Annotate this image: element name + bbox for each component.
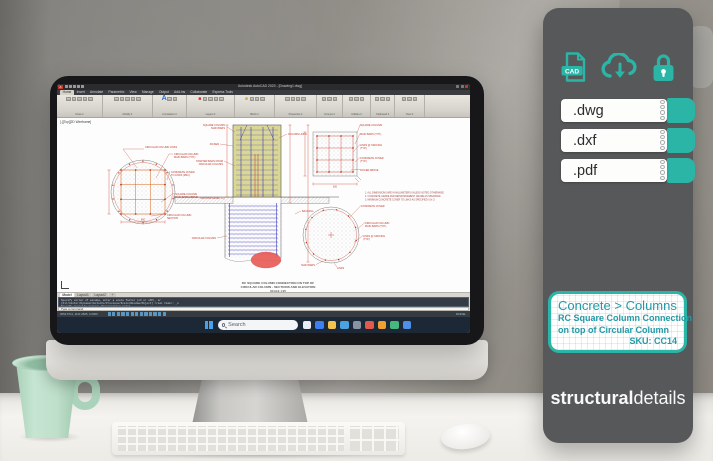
taskbar-search[interactable]: Search	[218, 320, 298, 331]
tool-icon[interactable]	[413, 97, 418, 102]
monitor-screen: A Autodesk AutoCAD 2023 - [Drawing1.dwg]…	[57, 84, 470, 333]
edge-browser-icon[interactable]	[315, 321, 324, 330]
tool-icon[interactable]	[120, 97, 125, 102]
ribbon-group-annotation: AAnnotation ▾	[153, 95, 187, 117]
command-input[interactable]: Type a command	[58, 307, 469, 311]
autocad-app-icon[interactable]: A	[58, 85, 63, 89]
tool-icon[interactable]	[333, 97, 338, 102]
drawing-label: GROUND LEVEL	[200, 197, 220, 200]
drawing-note: 2. CONCRETE GRADE AND REINFORCEMENT GRAD…	[365, 195, 441, 198]
tool-icon[interactable]	[260, 97, 265, 102]
drawing-label: LINKS	[337, 267, 345, 270]
drawing-note: 3. MINIMUM CONCRETE COVER TO LINKS AS SP…	[365, 199, 436, 202]
tool-icon[interactable]	[167, 97, 172, 102]
ribbon-group-properties: Properties ▾	[275, 95, 317, 117]
ribbon-group-label: View ▾	[406, 113, 414, 116]
drawing-label: CONCRETE COVER(TYP.)	[360, 157, 384, 163]
keyboard	[112, 422, 405, 455]
ribbon-group-layers: ■Layers ▾	[187, 95, 235, 117]
cad-file-icon: CAD	[560, 52, 590, 83]
excel-icon[interactable]	[390, 321, 399, 330]
drawing-label: CIRCULAR COLUMNMAIN BARS (TYP.)	[365, 222, 390, 228]
tool-icon[interactable]	[291, 97, 296, 102]
quick-access-toolbar[interactable]	[65, 85, 84, 88]
cursor-coordinates: 3054.6711, 1121.0825, 0.0000	[60, 312, 98, 316]
ribbon-group-label: Utilities ▾	[351, 113, 361, 116]
square-column-plan-section	[304, 125, 362, 186]
drawing-label: 600	[141, 219, 146, 222]
drawing-label: SQUARE COLUMNMAIN BARS	[203, 124, 225, 130]
drawing-label: 300	[333, 186, 338, 189]
tool-icon[interactable]	[285, 97, 290, 102]
scene: A Autodesk AutoCAD 2023 - [Drawing1.dwg]…	[0, 0, 713, 461]
format-button-list: .dwg.dxf.pdf	[561, 98, 693, 188]
tool-icon[interactable]: ■	[197, 97, 202, 102]
tool-icon[interactable]	[386, 97, 391, 102]
tool-icon[interactable]	[203, 97, 208, 102]
drawing-note: 1. ALL DIMENSIONS ARE IN MILLIMETERS UNL…	[365, 192, 445, 195]
status-toggle-icon[interactable]	[135, 312, 138, 315]
tool-icon[interactable]	[375, 97, 380, 102]
status-toggle-icon[interactable]	[140, 312, 143, 315]
ucs-icon	[61, 281, 69, 289]
brand-regular: details	[634, 388, 686, 408]
tool-icon[interactable]: A	[162, 97, 167, 102]
ribbon-group-utilities: Utilities ▾	[343, 95, 371, 117]
ribbon-group-label: Groups ▾	[324, 113, 335, 116]
tool-icon[interactable]	[322, 97, 327, 102]
spiral-binding	[660, 160, 665, 181]
status-toggle-icon[interactable]	[144, 312, 147, 315]
drawing-label: MAIN BARS	[301, 264, 315, 267]
status-toggle-icon[interactable]	[126, 312, 129, 315]
format-tab-dwg[interactable]	[667, 98, 695, 123]
tool-icon[interactable]	[296, 97, 301, 102]
close-icon	[465, 85, 468, 88]
tool-icon[interactable]	[72, 97, 77, 102]
status-toggle-icons[interactable]	[108, 312, 166, 315]
maximize-icon	[461, 85, 464, 88]
tool-icon[interactable]	[354, 97, 359, 102]
circular-column-lower-section	[303, 206, 365, 268]
status-toggle-icon[interactable]	[153, 312, 156, 315]
drawing-label: CIRCULAR COLUMNMAIN BARS (TYP.)	[174, 153, 199, 159]
drawing-label: COLUMN LINKS	[288, 133, 307, 136]
product-title-line2: on top of Circular Column	[558, 325, 677, 337]
feature-icons-row: CAD	[543, 52, 693, 83]
drawing-label: SQUARE COLUMNMAIN BARS ABOVE	[175, 193, 198, 199]
drawing-label: BACKFILL	[302, 210, 314, 213]
download-dxf-button[interactable]: .dxf	[561, 129, 667, 152]
monitor-chin	[46, 340, 488, 380]
ribbon-group-label: Modify ▾	[123, 113, 133, 116]
svg-text:CAD: CAD	[564, 68, 578, 75]
tool-icon[interactable]	[250, 97, 255, 102]
product-info-box: Concrete > Columns RC Square Column Conn…	[548, 291, 687, 353]
format-tab-pdf[interactable]	[667, 158, 695, 183]
keyboard-main-keys	[118, 426, 344, 451]
tool-icon[interactable]	[407, 97, 412, 102]
search-label: Search	[228, 322, 245, 328]
window-buttons[interactable]	[456, 85, 468, 88]
tool-icon[interactable]	[349, 97, 354, 102]
drawing-label: CONCRETE COVERTO LINKS (MIN.)	[171, 171, 195, 177]
ribbon-group-label: Clipboard ▾	[376, 113, 389, 116]
status-toggle-icon[interactable]	[149, 312, 152, 315]
download-pdf-button[interactable]: .pdf	[561, 159, 667, 182]
tool-icon[interactable]	[131, 97, 136, 102]
drawing-label: KICKER ABOVE	[360, 169, 379, 172]
tool-icon[interactable]	[219, 97, 224, 102]
microsoft-store-icon[interactable]	[340, 321, 349, 330]
ribbon-group-label: Draw ▾	[75, 113, 83, 116]
circular-column-plan-section	[108, 149, 176, 224]
spiral-binding	[660, 130, 665, 151]
brand-bold: structural	[550, 388, 633, 408]
tool-icon[interactable]	[88, 97, 93, 102]
tool-icon[interactable]	[402, 97, 407, 102]
tool-icon[interactable]	[255, 97, 260, 102]
product-category: Concrete > Columns	[558, 298, 677, 313]
minimize-icon	[456, 85, 459, 88]
download-dwg-button[interactable]: .dwg	[561, 99, 667, 122]
ribbon-group-draw: Draw ▾	[57, 95, 103, 117]
widgets-icon[interactable]	[303, 321, 312, 330]
ribbon-group-label: Block ▾	[250, 113, 258, 116]
ribbon: Draw ▾Modify ▾AAnnotation ▾■Layers ▾■Blo…	[57, 95, 470, 118]
taskbar-app-icons	[303, 321, 412, 330]
office-icon[interactable]	[378, 321, 387, 330]
spiral-binding	[660, 100, 665, 121]
tool-icon[interactable]	[173, 97, 178, 102]
tool-icon[interactable]	[114, 97, 119, 102]
command-history: Specify corner of window, enter a scale …	[58, 297, 469, 307]
outlook-icon[interactable]	[403, 321, 412, 330]
drawing-label: CIRCULAR COLUMN LINKS	[145, 146, 178, 149]
status-toggle-icon[interactable]	[112, 312, 115, 315]
drawing-label: CIRCULAR COLUMN	[192, 237, 217, 240]
drawing-label: LINKS @ SPACING(TYP.)	[360, 144, 382, 150]
command-window: Specify corner of window, enter a scale …	[57, 297, 470, 311]
ribbon-group-groups: Groups ▾	[317, 95, 343, 117]
ribbon-group-view: View ▾	[395, 95, 425, 117]
tool-icon[interactable]	[125, 97, 130, 102]
ribbon-group-modify: Modify ▾	[103, 95, 153, 117]
tool-icon[interactable]	[83, 97, 88, 102]
format-row-dwg: .dwg	[561, 98, 693, 123]
viewport-controls[interactable]: [-][Top][2D Wireframe]	[60, 120, 91, 124]
status-toggle-icon[interactable]	[108, 312, 111, 315]
file-explorer-icon[interactable]	[328, 321, 337, 330]
tool-icon[interactable]	[208, 97, 213, 102]
ribbon-group-label: Properties ▾	[289, 113, 303, 116]
status-toggle-icon[interactable]	[131, 312, 134, 315]
windows-taskbar: Search	[57, 317, 470, 333]
drawing-label: STARTER BARS FROMCIRCULAR COLUMN	[196, 160, 223, 166]
tool-icon[interactable]	[301, 97, 306, 102]
brand-logo: structuraldetails	[543, 388, 693, 409]
keyboard-numpad	[350, 426, 399, 451]
lock-icon	[650, 52, 677, 83]
start-button[interactable]	[205, 321, 213, 329]
tool-icon[interactable]	[136, 97, 141, 102]
drawing-label: SQUARE COLUMN	[360, 124, 382, 127]
search-icon	[222, 323, 226, 327]
product-title-line1: RC Square Column Connection	[558, 313, 677, 325]
format-tab-dxf[interactable]	[667, 128, 695, 153]
tool-icon[interactable]: ■	[244, 97, 249, 102]
cloud-download-icon	[601, 53, 639, 82]
tool-icon[interactable]	[214, 97, 219, 102]
tool-icon[interactable]	[380, 97, 385, 102]
status-toggle-icon[interactable]	[158, 312, 161, 315]
ribbon-group-label: Annotation ▾	[162, 113, 176, 116]
tool-icon[interactable]	[66, 97, 71, 102]
drawing-canvas[interactable]: [-][Top][2D Wireframe]	[57, 118, 470, 292]
drawing-label: MAIN BARS (TYP.)	[360, 133, 382, 136]
drawing-label: CIRCULAR COLUMNSECTION	[167, 214, 192, 220]
ribbon-group-clipboard: Clipboard ▾	[371, 95, 395, 117]
drawing-label: LINKS @ SPACING(TYP.)	[363, 235, 385, 241]
autocad-app-icon[interactable]	[365, 321, 374, 330]
status-toggle-icon[interactable]	[163, 312, 166, 315]
tool-icon[interactable]	[77, 97, 82, 102]
ribbon-group-label: Layers ▾	[206, 113, 216, 116]
ribbon-group-block: ■Block ▾	[235, 95, 275, 117]
structural-detail-drawing: CIRCULAR COLUMN LINKSCIRCULAR COLUMNMAIN…	[57, 118, 470, 292]
settings-icon[interactable]	[353, 321, 362, 330]
drawing-label: KICKER	[210, 143, 220, 146]
download-panel: CAD .dwg.dxf.pdf Concrete > Columns RC S…	[543, 8, 693, 443]
format-row-pdf: .pdf	[561, 158, 693, 183]
product-sku: SKU: CC14	[558, 336, 677, 348]
status-toggle-icon[interactable]	[117, 312, 120, 315]
drawing-label: CONCRETE COVER	[361, 205, 385, 208]
status-toggle-icon[interactable]	[121, 312, 124, 315]
tool-icon[interactable]	[360, 97, 365, 102]
section-cut-marker	[251, 252, 281, 268]
tool-icon[interactable]	[327, 97, 332, 102]
model-space-badge: MODEL	[456, 312, 466, 316]
format-row-dxf: .dxf	[561, 128, 693, 153]
